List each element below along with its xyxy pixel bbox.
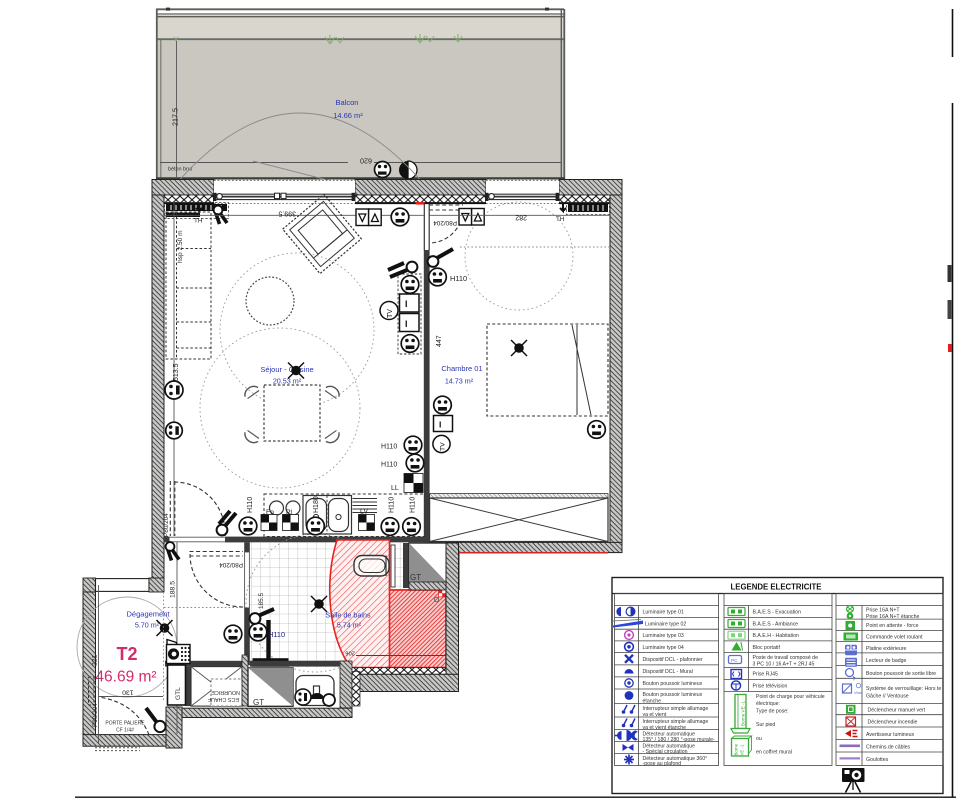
svg-text:va et vient: va et vient	[643, 712, 667, 718]
svg-text:282: 282	[515, 214, 527, 221]
svg-text:CF 1/4#: CF 1/4#	[116, 728, 134, 734]
svg-text:PORTE PALIERE: PORTE PALIERE	[105, 721, 145, 727]
svg-text:217.5: 217.5	[171, 108, 180, 126]
svg-text:en coffret mural: en coffret mural	[756, 750, 792, 756]
svg-text:LEGENDE ELECTRICITE: LEGENDE ELECTRICITE	[731, 583, 822, 592]
svg-text:Sur pied: Sur pied	[756, 722, 775, 728]
svg-text:Prise 16A N+T étanche: Prise 16A N+T étanche	[866, 614, 920, 620]
svg-text:H110: H110	[247, 497, 254, 513]
svg-text:Séjour - Cuisine: Séjour - Cuisine	[260, 365, 313, 374]
svg-text:H110: H110	[381, 444, 397, 451]
svg-text:H110: H110	[410, 497, 417, 513]
svg-text:Commande volet roulant: Commande volet roulant	[866, 635, 923, 641]
svg-text:TH: TH	[194, 218, 203, 225]
svg-text:Déclencheur manuel vert: Déclencheur manuel vert	[868, 708, 926, 714]
svg-text:- Spécial circulation: - Spécial circulation	[643, 749, 688, 755]
svg-text:447: 447	[436, 335, 443, 347]
svg-text:T2: T2	[116, 644, 137, 664]
svg-text:H110: H110	[450, 274, 467, 283]
svg-text:130: 130	[122, 689, 134, 696]
svg-text:LL: LL	[391, 485, 399, 492]
svg-text:206: 206	[345, 650, 355, 656]
svg-text:GT: GT	[253, 698, 264, 707]
svg-text:Goulottes: Goulottes	[866, 757, 889, 763]
svg-text:-pose au plafond: -pose au plafond	[643, 761, 682, 767]
svg-text:H110: H110	[268, 630, 285, 639]
svg-text:ou: ou	[756, 736, 762, 742]
svg-text:Bouton poussoir lumineux: Bouton poussoir lumineux	[643, 692, 703, 698]
svg-text:hsp 2.50 m: hsp 2.50 m	[177, 230, 184, 263]
svg-text:Interrupteur simple allumage: Interrupteur simple allumage	[643, 706, 709, 712]
svg-text:GT: GT	[410, 573, 421, 582]
svg-text:ECS CHAUF: ECS CHAUF	[207, 696, 239, 702]
svg-text:Avertisseur lumineux: Avertisseur lumineux	[866, 732, 914, 738]
svg-text:188.5: 188.5	[170, 581, 177, 598]
svg-text:Luminaire type 04: Luminaire type 04	[643, 645, 684, 651]
svg-text:H110: H110	[389, 497, 396, 513]
svg-text:TH: TH	[556, 216, 565, 223]
svg-text:513.5: 513.5	[173, 363, 180, 381]
svg-text:5.74 m²: 5.74 m²	[337, 621, 362, 630]
svg-text:PC: PC	[731, 658, 738, 663]
svg-text:Chambre 01: Chambre 01	[441, 364, 482, 373]
svg-text:Poste de travail composé de: Poste de travail composé de	[753, 655, 819, 661]
svg-text:Type de pose:: Type de pose:	[756, 709, 789, 715]
svg-text:14.66 m²: 14.66 m²	[333, 111, 363, 120]
svg-text:Prise 16A N+T: Prise 16A N+T	[866, 608, 900, 614]
svg-text:B.A.E.S - Evacuation: B.A.E.S - Evacuation	[753, 610, 802, 616]
svg-text:P80/204: P80/204	[433, 219, 457, 226]
svg-text:GTL: GTL	[175, 687, 182, 700]
svg-text:399.5: 399.5	[278, 210, 296, 217]
svg-text:5.70 m²: 5.70 m²	[135, 621, 160, 630]
svg-text:étanche: étanche	[643, 699, 662, 705]
svg-text:Bouton poussoir de sortie libr: Bouton poussoir de sortie libre	[866, 671, 936, 677]
svg-text:H110: H110	[381, 462, 397, 469]
svg-text:I: I	[439, 420, 441, 430]
svg-text:Vtse: Vtse	[854, 691, 862, 695]
svg-text:Bouton poussoir lumineux: Bouton poussoir lumineux	[643, 681, 703, 687]
svg-text:Déclencheur incendie: Déclencheur incendie	[868, 720, 918, 726]
svg-text:I: I	[405, 299, 408, 309]
svg-text:I: I	[405, 319, 408, 329]
svg-text:VE -1: VE -1	[740, 744, 745, 756]
svg-text:B.A.E.H - Habitation: B.A.E.H - Habitation	[753, 633, 800, 639]
svg-text:Prise télévision: Prise télévision	[753, 684, 788, 690]
svg-text:3 PC 10 / 16 A+T + 2RJ 45: 3 PC 10 / 16 A+T + 2RJ 45	[753, 662, 815, 668]
svg-text:Gâche // Ventouse: Gâche // Ventouse	[866, 694, 909, 700]
svg-text:14.73 m²: 14.73 m²	[445, 377, 474, 386]
svg-text:P80/204: P80/204	[163, 513, 170, 537]
svg-text:va et vient étanche: va et vient étanche	[643, 725, 687, 731]
svg-text:185.5: 185.5	[258, 593, 265, 609]
svg-text:Dispositif DCL - Mural: Dispositif DCL - Mural	[643, 669, 693, 675]
svg-text:620: 620	[360, 157, 372, 166]
svg-text:TV: TV	[440, 442, 447, 451]
svg-text:Point de charge pour véhicule: Point de charge pour véhicule	[756, 694, 825, 700]
svg-text:Luminaire type 03: Luminaire type 03	[643, 633, 684, 639]
svg-text:NOURRICE: NOURRICE	[211, 689, 240, 695]
svg-text:Borne: Borne	[734, 743, 739, 755]
svg-text:TV: TV	[387, 309, 394, 318]
svg-text:B.A.E.S - Ambiance: B.A.E.S - Ambiance	[753, 622, 799, 628]
svg-text:Bloc portatif: Bloc portatif	[753, 645, 781, 651]
svg-text:46.69 m²: 46.69 m²	[95, 669, 156, 686]
svg-text:P80/204: P80/204	[219, 561, 243, 568]
svg-text:Borne VE -1: Borne VE -1	[741, 701, 746, 726]
svg-text:Système de verrouillage: Hors: Système de verrouillage: Hors te	[866, 686, 941, 692]
svg-text:135° / 180 / 280 °-pose murale: 135° / 180 / 280 °-pose murale-	[643, 737, 715, 743]
svg-text:Point en attente - force: Point en attente - force	[866, 623, 919, 629]
svg-text:Platine extérieure: Platine extérieure	[866, 646, 906, 652]
svg-text:Luminaire type 01: Luminaire type 01	[643, 610, 684, 616]
svg-text:électrique:: électrique:	[756, 701, 780, 707]
svg-text:Salle de bains: Salle de bains	[325, 611, 371, 620]
svg-text:Balcon: Balcon	[336, 98, 359, 107]
svg-text:H180: H180	[313, 496, 320, 513]
svg-text:Prise RJ45: Prise RJ45	[753, 672, 778, 678]
svg-text:Lecteur de badge: Lecteur de badge	[866, 658, 906, 664]
svg-text:Chemins de câbles: Chemins de câbles	[866, 745, 911, 751]
svg-text:Luminaire type 02: Luminaire type 02	[645, 622, 686, 628]
svg-text:20.53 m²: 20.53 m²	[273, 377, 302, 386]
svg-text:Dispositif DCL - plafonnier: Dispositif DCL - plafonnier	[643, 657, 703, 663]
svg-text:P90/204: P90/204	[92, 703, 99, 727]
svg-text:221: 221	[92, 654, 99, 666]
svg-text:Dégagement: Dégagement	[127, 610, 171, 619]
